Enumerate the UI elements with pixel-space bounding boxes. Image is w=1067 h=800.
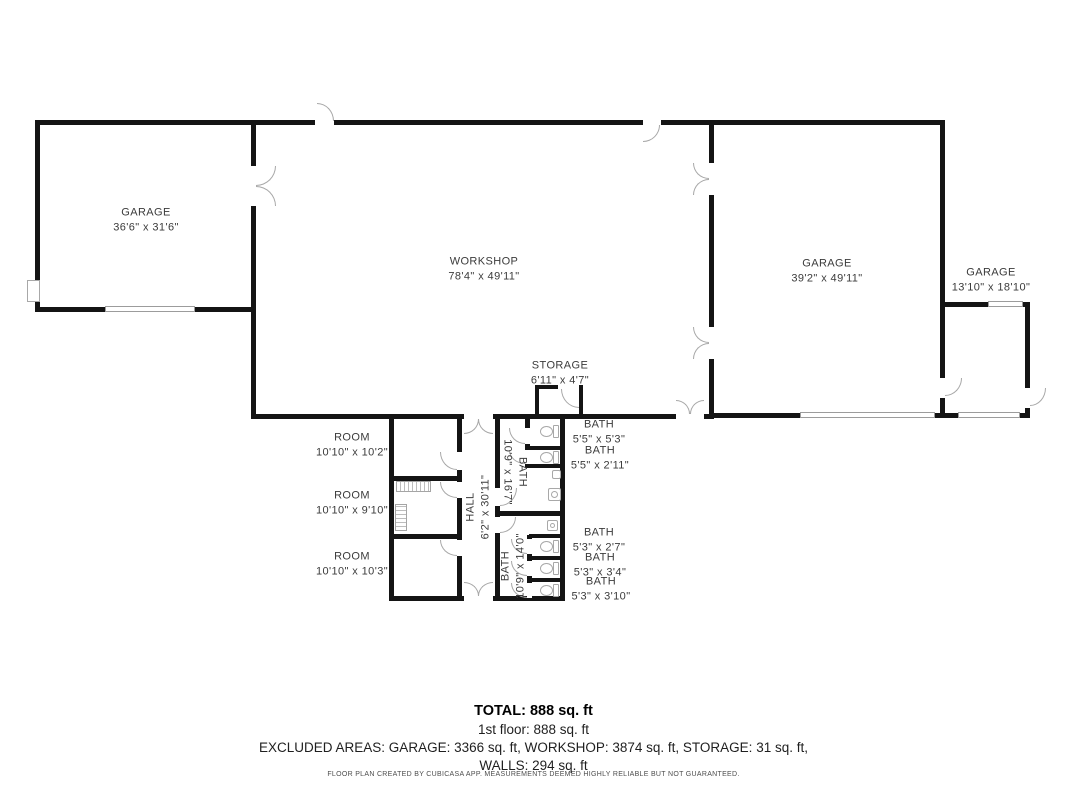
- room-dims: 10'9" x 14'0": [514, 533, 529, 599]
- room-name: BATH: [571, 575, 630, 590]
- stairs-icon: [395, 504, 407, 531]
- toilet-icon: [540, 583, 559, 596]
- room-label-room-middle: ROOM 10'10" x 9'10": [316, 489, 388, 520]
- door-swing: [1030, 388, 1046, 406]
- window: [988, 301, 1023, 307]
- window: [105, 306, 195, 312]
- stairs-icon: [396, 481, 431, 492]
- room-label-bath-upper: BATH 10'9" x 16'7": [499, 439, 530, 505]
- room-dims: 6'2" x 30'11": [479, 475, 494, 540]
- door-opening: [457, 540, 462, 556]
- door-swing: [561, 389, 579, 408]
- first-floor-area: 1st floor: 888 sq. ft: [0, 722, 1067, 737]
- room-name: BATH: [573, 526, 626, 541]
- room-label-hall: HALL 6'2" x 30'11": [464, 475, 495, 540]
- room-label-bath-lower: BATH 10'9" x 14'0": [499, 533, 530, 599]
- door-swing: [478, 419, 493, 434]
- room-label-room-top: ROOM 10'10" x 10'2": [316, 431, 388, 462]
- door-opening: [457, 452, 462, 470]
- room-dims: 5'5" x 2'11": [571, 459, 629, 474]
- wall: [529, 534, 565, 538]
- room-name: HALL: [464, 475, 479, 540]
- wall: [527, 464, 565, 468]
- wall: [495, 511, 565, 516]
- sink-icon: [548, 488, 561, 501]
- door-swing: [440, 452, 457, 470]
- room-label-bath-stall-5: BATH 5'3" x 3'10": [571, 575, 630, 606]
- room-name: WORKSHOP: [448, 255, 519, 270]
- room-dims: 39'2" x 49'11": [791, 272, 862, 287]
- room-name: ROOM: [316, 550, 388, 565]
- wall: [35, 120, 945, 125]
- excluded-areas: EXCLUDED AREAS: GARAGE: 3366 sq. ft, WOR…: [0, 740, 1067, 755]
- room-name: BATH: [499, 533, 514, 599]
- room-name: BATH: [573, 418, 626, 433]
- door-swing: [464, 419, 479, 434]
- door-swing: [693, 179, 709, 195]
- room-label-garage-left: GARAGE 36'6" x 31'6": [113, 206, 179, 237]
- door-opening: [709, 163, 714, 195]
- wall: [529, 578, 565, 582]
- room-label-garage-right: GARAGE 39'2" x 49'11": [791, 257, 862, 288]
- area-summary: TOTAL: 888 sq. ft 1st floor: 888 sq. ft …: [0, 703, 1067, 773]
- total-area: TOTAL: 888 sq. ft: [0, 703, 1067, 719]
- side-door: [27, 280, 40, 302]
- room-dims: 36'6" x 31'6": [113, 221, 179, 236]
- door-swing: [317, 103, 334, 121]
- toilet-icon: [540, 424, 559, 438]
- door-opening: [709, 327, 714, 359]
- disclaimer: FLOOR PLAN CREATED BY CUBICASA APP. MEAS…: [0, 771, 1067, 778]
- window: [800, 412, 935, 418]
- room-dims: 5'3" x 3'10": [571, 590, 630, 605]
- room-name: GARAGE: [113, 206, 179, 221]
- sink-icon: [547, 520, 558, 531]
- door-swing: [643, 125, 660, 142]
- door-opening: [457, 482, 462, 498]
- room-label-room-bottom: ROOM 10'10" x 10'3": [316, 550, 388, 581]
- wall: [457, 414, 462, 601]
- door-swing: [256, 166, 276, 186]
- room-name: BATH: [574, 551, 627, 566]
- door-swing: [945, 378, 962, 396]
- room-name: GARAGE: [952, 266, 1031, 281]
- door-swing: [693, 343, 709, 359]
- room-label-storage: STORAGE 6'11" x 4'7": [531, 359, 589, 390]
- wall: [940, 120, 945, 418]
- wall: [535, 385, 539, 419]
- room-dims: 10'9" x 16'7": [499, 439, 514, 505]
- room-dims: 10'10" x 10'3": [316, 565, 388, 580]
- floor-plan: GARAGE 36'6" x 31'6" WORKSHOP 78'4" x 49…: [0, 0, 1067, 800]
- room-name: GARAGE: [791, 257, 862, 272]
- room-label-workshop: WORKSHOP 78'4" x 49'11": [448, 255, 519, 286]
- door-swing: [690, 400, 704, 414]
- door-swing: [693, 163, 709, 179]
- door-swing: [440, 482, 457, 498]
- room-name: STORAGE: [531, 359, 589, 374]
- room-label-bath-stall-2: BATH 5'5" x 2'11": [571, 444, 629, 475]
- room-name: BATH: [514, 439, 529, 505]
- wall: [579, 385, 583, 419]
- door-swing: [500, 517, 516, 533]
- toilet-icon: [540, 539, 559, 553]
- door-swing: [693, 327, 709, 343]
- room-dims: 6'11" x 4'7": [531, 374, 589, 389]
- toilet-icon: [540, 561, 559, 574]
- room-label-garage-small: GARAGE 13'10" x 18'10": [952, 266, 1031, 297]
- door-opening: [464, 596, 493, 601]
- door-swing: [478, 582, 493, 596]
- door-swing: [676, 400, 690, 414]
- wall: [389, 414, 394, 601]
- room-name: ROOM: [316, 489, 388, 504]
- room-dims: 10'10" x 10'2": [316, 446, 388, 461]
- sink-icon: [552, 470, 561, 479]
- door-swing: [440, 540, 457, 556]
- door-swing: [256, 186, 276, 206]
- room-dims: 78'4" x 49'11": [448, 270, 519, 285]
- room-name: ROOM: [316, 431, 388, 446]
- door-swing: [464, 582, 479, 596]
- wall: [560, 414, 565, 601]
- window: [958, 412, 1020, 418]
- wall: [389, 534, 462, 539]
- room-dims: 10'10" x 9'10": [316, 504, 388, 519]
- room-dims: 13'10" x 18'10": [952, 281, 1031, 296]
- wall: [251, 120, 256, 419]
- room-name: BATH: [571, 444, 629, 459]
- toilet-icon: [540, 450, 559, 463]
- door-opening: [676, 414, 704, 419]
- wall: [529, 556, 565, 560]
